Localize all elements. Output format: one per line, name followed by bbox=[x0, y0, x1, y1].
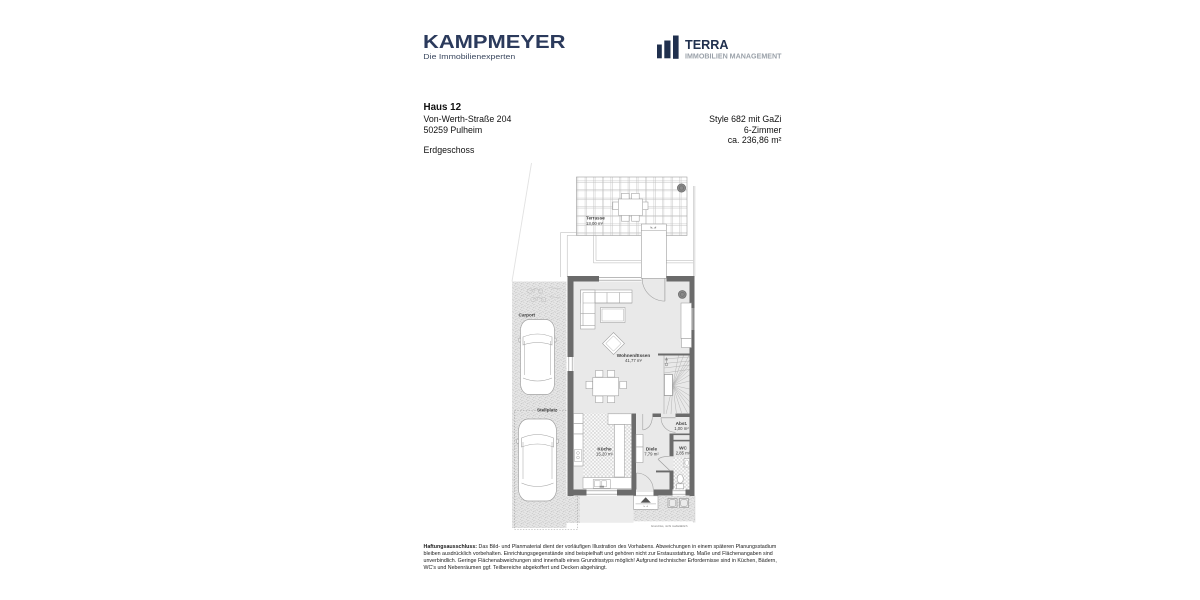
svg-text:Die Immobilienexperten: Die Immobilienexperten bbox=[423, 52, 515, 61]
svg-text:2,85 m²: 2,85 m² bbox=[676, 451, 691, 456]
svg-text:Stellplatz: Stellplatz bbox=[537, 407, 558, 412]
svg-text:IMMOBILIEN MANAGEMENT: IMMOBILIEN MANAGEMENT bbox=[685, 52, 782, 61]
svg-text:TERRA: TERRA bbox=[685, 37, 729, 52]
svg-text:13,00 m²: 13,00 m² bbox=[586, 221, 604, 226]
svg-text:7,79 m²: 7,79 m² bbox=[644, 452, 659, 457]
svg-text:1,00 m²: 1,00 m² bbox=[674, 426, 689, 431]
svg-text:KAMPMEYER: KAMPMEYER bbox=[423, 32, 566, 52]
svg-text:41,77 m²: 41,77 m² bbox=[625, 358, 643, 363]
svg-text:Grundriss, nicht maßstäblich: Grundriss, nicht maßstäblich bbox=[651, 524, 688, 528]
svg-text:15,20 m²: 15,20 m² bbox=[596, 452, 614, 457]
svg-text:Carport: Carport bbox=[519, 313, 536, 318]
